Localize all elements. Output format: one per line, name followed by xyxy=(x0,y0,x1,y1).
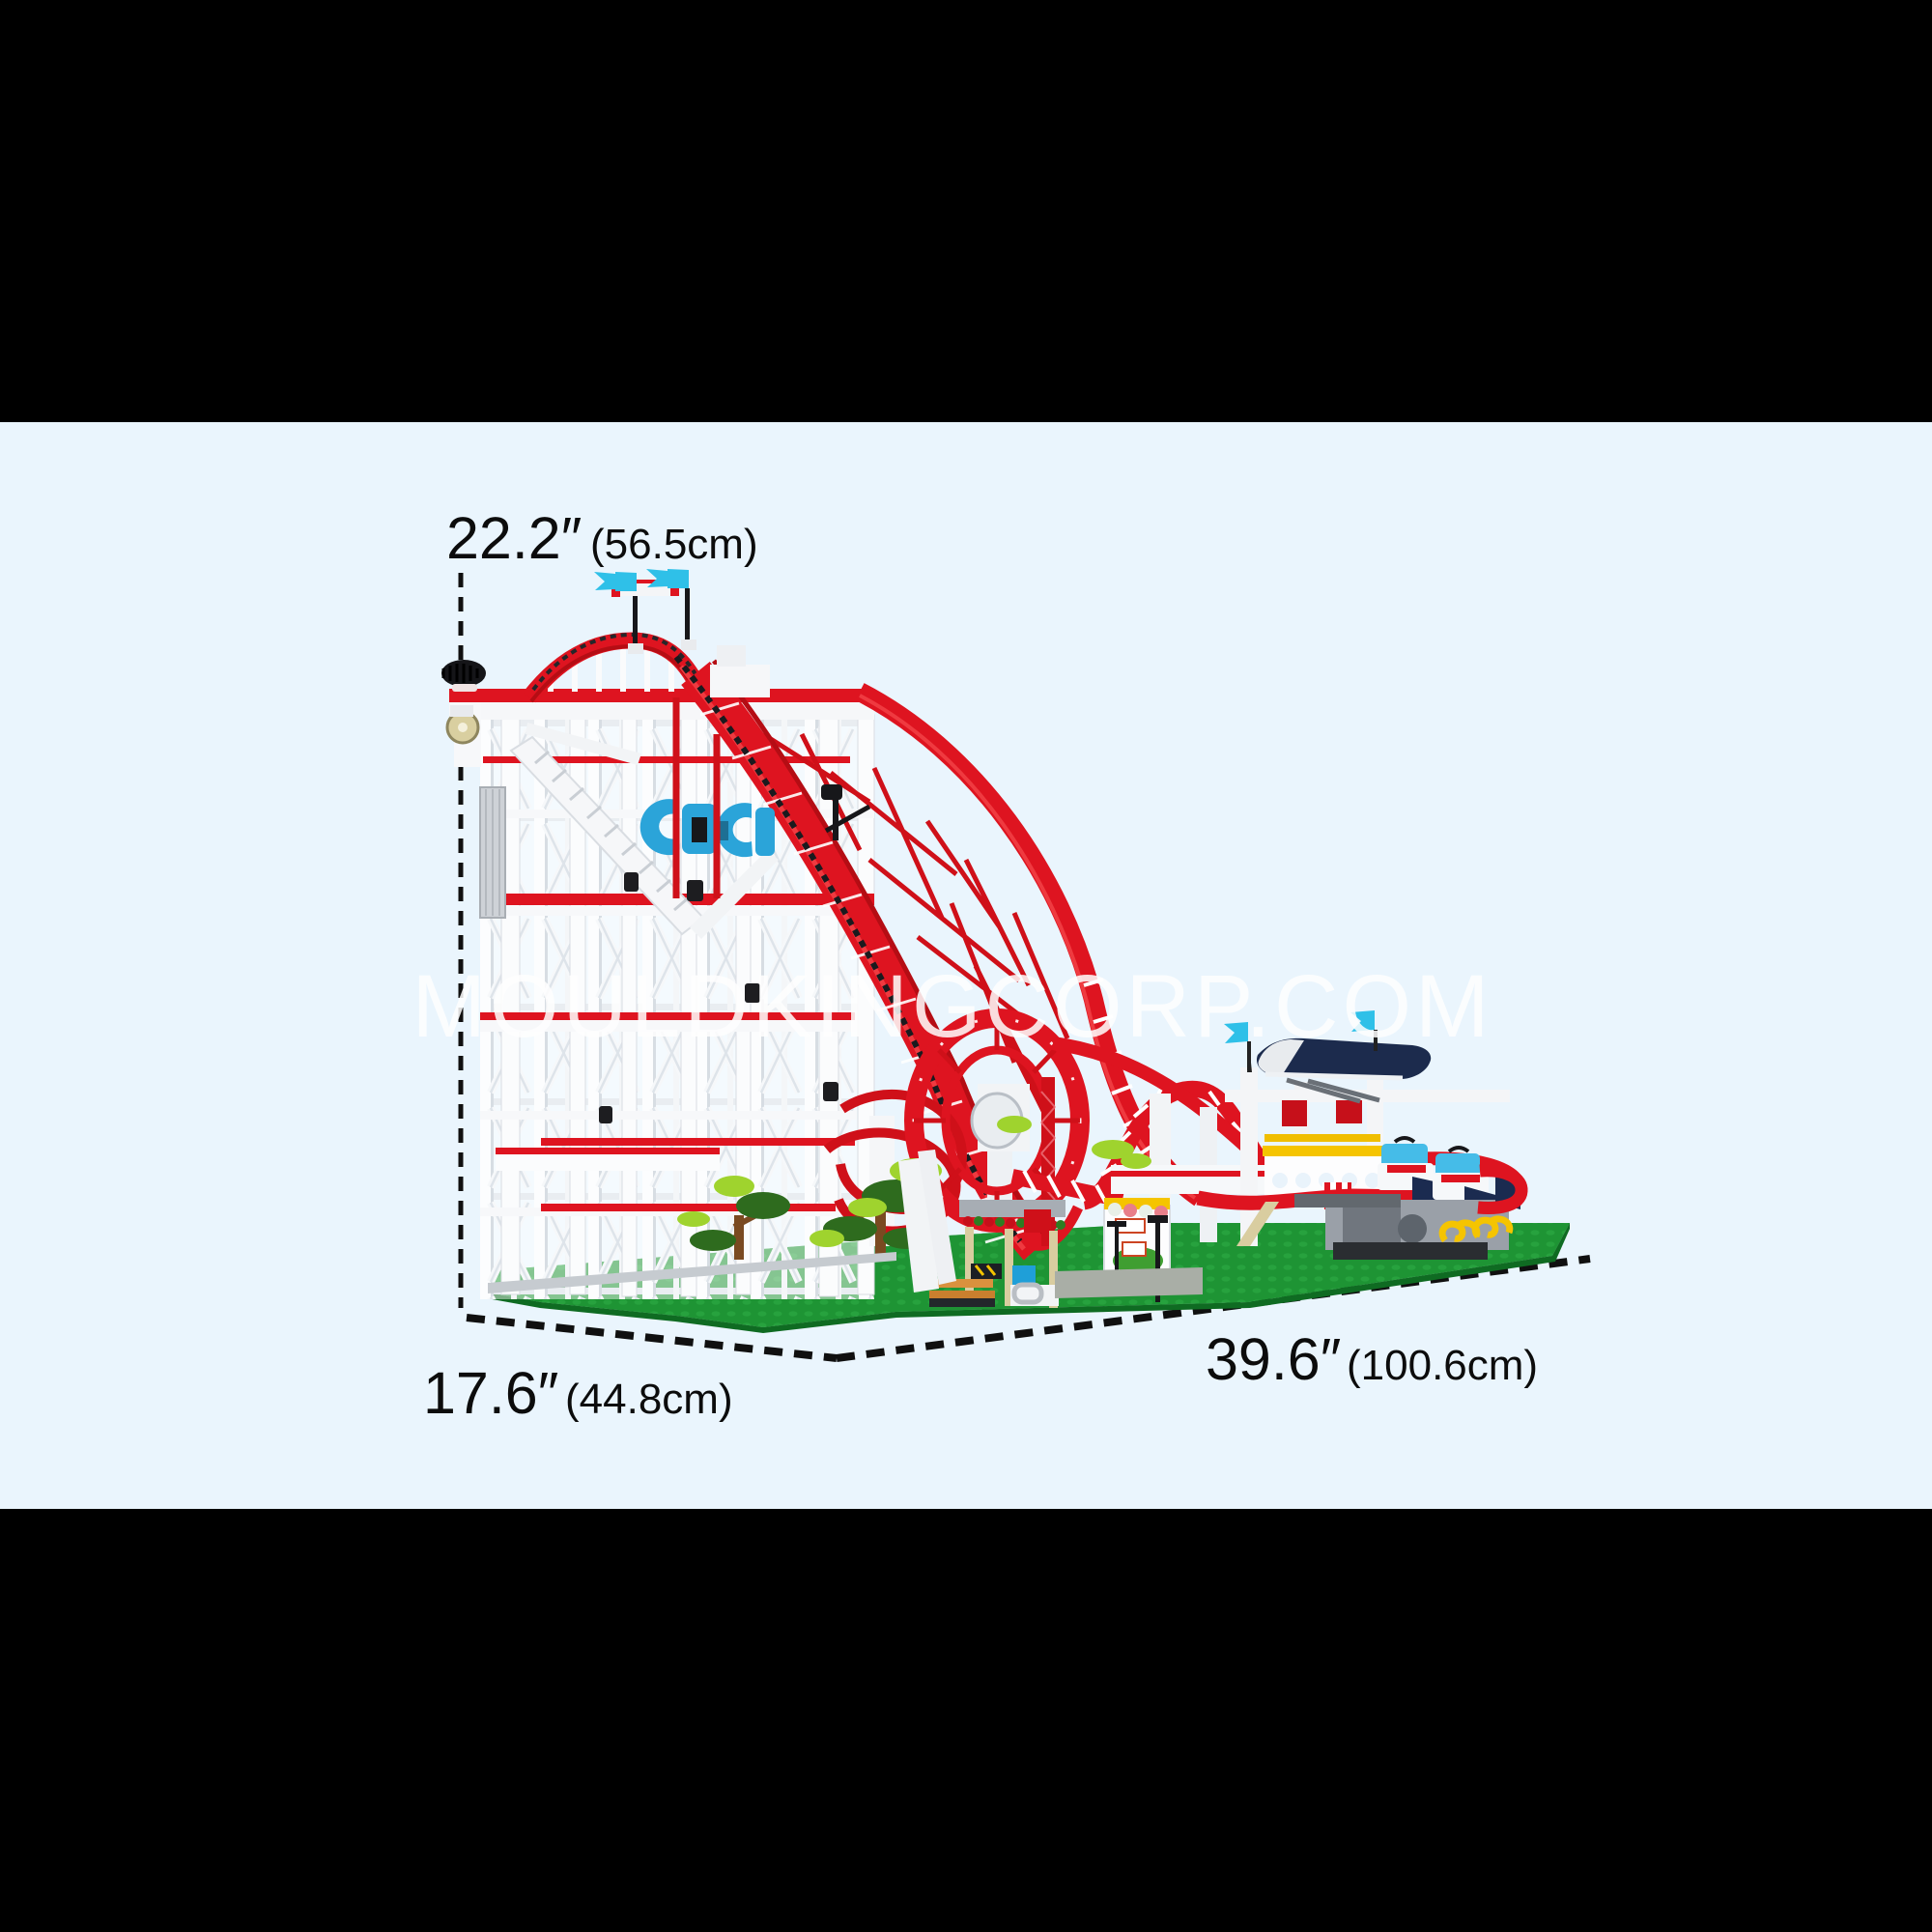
svg-text:MOULDKINGCORP.COM: MOULDKINGCORP.COM xyxy=(412,957,1492,1056)
